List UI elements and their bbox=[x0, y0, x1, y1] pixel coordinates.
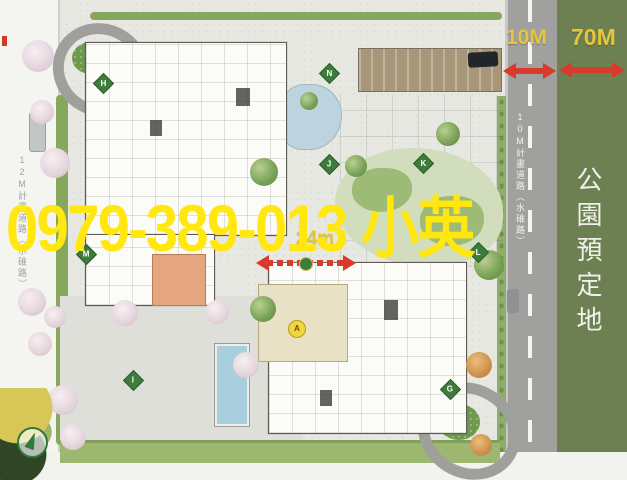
stair-core bbox=[150, 120, 162, 136]
right-road-name: 10M計畫道路（水碓路） bbox=[514, 112, 527, 247]
stair-core bbox=[236, 88, 250, 106]
tree bbox=[345, 155, 367, 177]
zone-badge-a: A bbox=[288, 320, 306, 338]
car bbox=[507, 289, 519, 313]
tree bbox=[470, 434, 492, 456]
park-width-arrow bbox=[559, 62, 625, 78]
north-compass-icon bbox=[17, 427, 48, 458]
park-width-label: 70M bbox=[571, 24, 616, 51]
tree bbox=[40, 148, 70, 178]
tree bbox=[466, 352, 492, 378]
tree bbox=[250, 296, 276, 322]
tree bbox=[44, 306, 66, 328]
road-width-arrow bbox=[503, 63, 556, 79]
tree bbox=[28, 332, 52, 356]
tree bbox=[436, 122, 460, 146]
car bbox=[468, 51, 499, 68]
park-reserved-label: 公園預定地 bbox=[570, 166, 607, 341]
tree bbox=[112, 300, 138, 326]
stair-core bbox=[320, 390, 332, 406]
tree bbox=[205, 300, 229, 324]
road-width-label: 10M bbox=[506, 26, 547, 50]
site-plan: H N J K L M I G A 10M 70M 24m 12M計畫道路（水碓… bbox=[0, 0, 627, 480]
tree bbox=[30, 100, 54, 124]
tree bbox=[233, 352, 259, 378]
tree bbox=[18, 288, 46, 316]
tree bbox=[60, 424, 86, 450]
red-boundary-mark bbox=[2, 36, 7, 46]
tree bbox=[22, 40, 54, 72]
watermark-phone-number: 0979-389-013 小英 bbox=[6, 195, 474, 261]
tree bbox=[250, 158, 278, 186]
top-hedge bbox=[90, 12, 502, 20]
tree bbox=[300, 92, 318, 110]
stair-core bbox=[384, 300, 398, 320]
